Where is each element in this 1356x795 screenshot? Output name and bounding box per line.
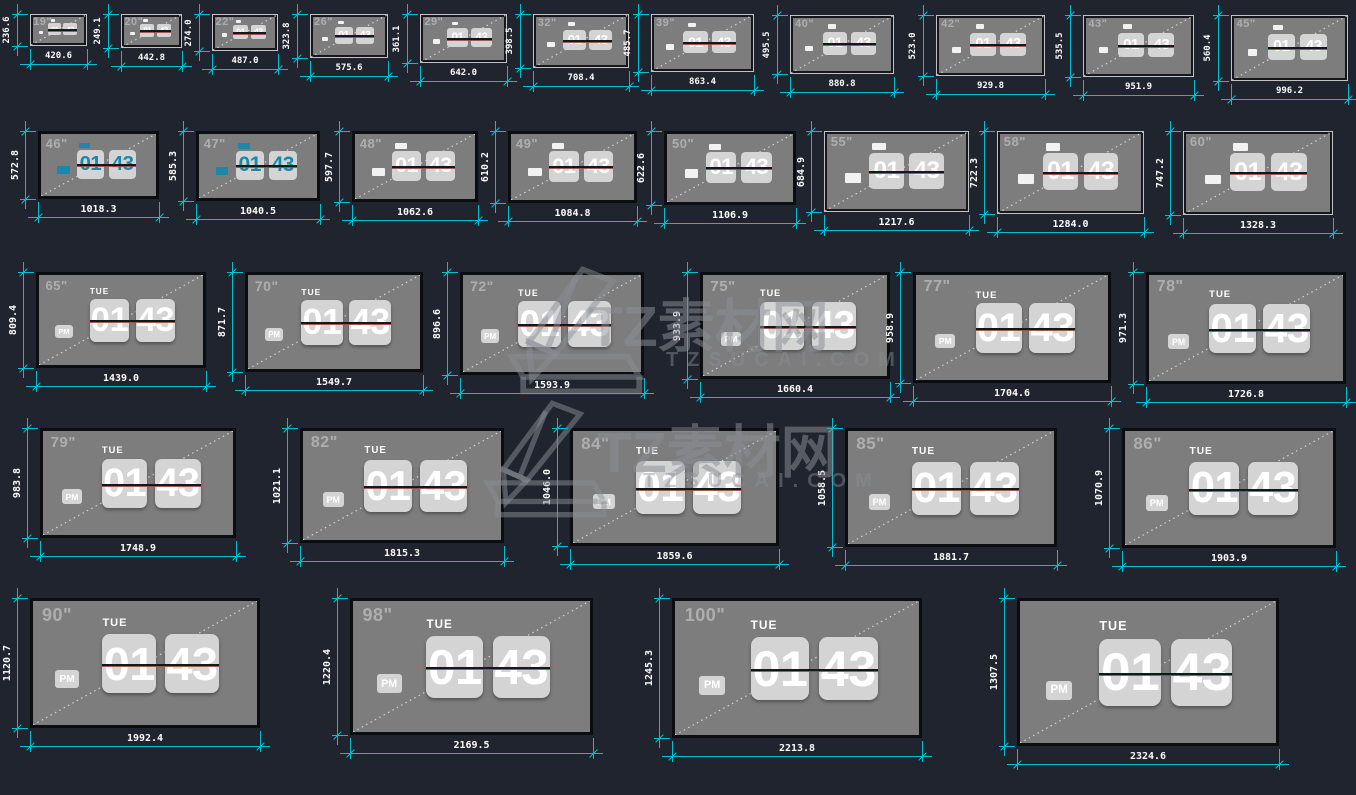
dim-extension-line — [1104, 428, 1120, 429]
day-label: TUE — [1209, 289, 1231, 300]
meridiem-badge: PM — [869, 494, 891, 510]
width-dim-value: 1726.8 — [1146, 389, 1346, 400]
dim-extension-line — [20, 199, 36, 200]
dim-extension-line — [682, 379, 698, 380]
day-block — [872, 143, 886, 150]
screen-rect: 49"0143 — [508, 131, 637, 203]
meridiem-block — [547, 42, 555, 47]
dim-extension-line — [895, 272, 911, 273]
screen-rect: 79"TUE0143PM — [40, 428, 236, 538]
screen-size-label: 60" — [1190, 134, 1212, 149]
dim-extension-line — [1111, 386, 1112, 407]
width-dim-value: 880.8 — [790, 79, 894, 89]
screen-rect: 47"0143 — [196, 131, 320, 201]
meridiem-block — [1248, 49, 1257, 55]
meridiem-badge: PM — [699, 676, 725, 695]
height-dim-value: 1046.0 — [542, 457, 554, 517]
dim-extension-line — [22, 538, 38, 539]
meridiem-block — [322, 37, 328, 41]
dim-line — [523, 86, 639, 87]
day-block — [238, 143, 250, 149]
meridiem-badge: PM — [721, 332, 740, 346]
dim-extension-line — [772, 74, 788, 75]
dim-extension-line — [12, 728, 28, 729]
dim-extension-line — [1065, 15, 1081, 16]
dim-extension-line — [12, 598, 28, 599]
height-dim-value: 933.9 — [672, 296, 684, 356]
dim-line — [339, 121, 340, 212]
height-dim-value: 560.4 — [1203, 18, 1215, 78]
day-block — [1273, 25, 1282, 30]
screen-size-label: 46" — [46, 136, 68, 151]
width-dim-value: 1660.4 — [700, 384, 890, 395]
flip-divider-red — [447, 40, 491, 41]
screen-rect: 75"TUE0143PM — [700, 272, 890, 379]
dim-extension-line — [442, 272, 458, 273]
dim-line — [342, 220, 488, 221]
dim-extension-line — [332, 598, 348, 599]
screen-rect: 98"TUE0143PM — [350, 598, 593, 735]
meridiem-block — [39, 31, 43, 34]
screen-size-label: 50" — [672, 136, 694, 151]
dim-extension-line — [1213, 81, 1229, 82]
dim-extension-line — [1065, 77, 1081, 78]
dim-extension-line — [1045, 79, 1046, 100]
day-label: TUE — [1189, 446, 1212, 457]
day-block — [688, 23, 696, 27]
dim-extension-line — [1128, 272, 1144, 273]
dim-extension-line — [772, 15, 788, 16]
dim-extension-line — [646, 205, 662, 206]
width-dim-value: 1549.7 — [245, 377, 423, 388]
dim-extension-line — [103, 48, 119, 49]
dim-line — [290, 561, 514, 562]
height-dim-value: 535.5 — [1055, 16, 1067, 76]
height-dim-value: 274.0 — [184, 3, 196, 63]
width-dim-value: 442.8 — [121, 53, 182, 63]
height-dim-value: 971.3 — [1118, 298, 1130, 358]
height-dim-value: 597.7 — [324, 137, 336, 197]
dim-extension-line — [388, 61, 389, 82]
day-label: TUE — [90, 287, 109, 296]
dim-extension-line — [18, 368, 34, 369]
dim-line — [183, 121, 184, 211]
flip-divider-red — [392, 168, 454, 169]
dim-extension-line — [1333, 218, 1334, 239]
dim-line — [232, 262, 233, 382]
dim-line — [687, 262, 688, 389]
dim-line — [287, 418, 288, 553]
dim-extension-line — [206, 371, 207, 392]
screen-size-label: 90" — [42, 605, 72, 626]
flip-divider-red — [301, 324, 390, 325]
dim-extension-line — [918, 76, 934, 77]
dim-extension-line — [194, 51, 210, 52]
dim-extension-line — [1165, 215, 1181, 216]
screen-size-label: 26" — [314, 16, 333, 28]
day-block — [568, 22, 576, 26]
width-dim-value: 1084.8 — [508, 208, 637, 219]
dim-line — [25, 121, 26, 209]
dim-line — [832, 418, 833, 557]
height-dim-value: 684.9 — [796, 142, 808, 202]
meridiem-badge: PM — [55, 325, 72, 338]
dim-extension-line — [282, 428, 298, 429]
day-label: TUE — [751, 618, 778, 632]
dim-extension-line — [779, 549, 780, 570]
dim-extension-line — [22, 428, 38, 429]
day-block — [1123, 24, 1132, 29]
dim-line — [984, 121, 985, 224]
dim-line — [27, 418, 28, 548]
meridiem-block — [372, 168, 385, 176]
meridiem-badge: PM — [1168, 334, 1188, 349]
dim-extension-line — [320, 204, 321, 225]
height-dim-value: 809.4 — [8, 290, 20, 350]
width-dim-value: 642.0 — [420, 68, 507, 78]
dim-extension-line — [1194, 80, 1195, 101]
height-dim-value: 1070.9 — [1094, 458, 1106, 518]
height-dim-value: 610.2 — [480, 137, 492, 197]
flip-divider-red — [1230, 174, 1307, 175]
screen-size-label: 75" — [710, 278, 735, 295]
width-dim-value: 1903.9 — [1122, 553, 1336, 564]
dim-extension-line — [1346, 387, 1347, 408]
height-dim-value: 958.9 — [885, 298, 897, 358]
dim-extension-line — [292, 14, 308, 15]
width-dim-value: 1062.6 — [352, 207, 478, 218]
width-dim-value: 1859.6 — [570, 551, 779, 562]
flip-divider-red — [751, 671, 878, 672]
meridiem-block — [952, 47, 961, 53]
day-label: TUE — [518, 288, 539, 298]
flip-divider-red — [102, 666, 218, 667]
dim-extension-line — [895, 383, 911, 384]
dim-extension-line — [890, 382, 891, 403]
screen-size-label: 58" — [1004, 134, 1026, 149]
day-label: TUE — [760, 288, 781, 298]
screen-rect: 39"0143 — [651, 14, 754, 72]
dim-extension-line — [260, 731, 261, 752]
dim-extension-line — [182, 51, 183, 72]
dim-extension-line — [87, 49, 88, 70]
flip-divider-red — [683, 44, 736, 45]
dim-extension-line — [918, 15, 934, 16]
dim-extension-line — [1057, 550, 1058, 571]
width-dim-value: 2324.6 — [1017, 751, 1279, 762]
flip-divider-red — [236, 167, 297, 168]
day-label: TUE — [636, 446, 659, 457]
dim-line — [641, 90, 764, 91]
screen-rect: 58"0143 — [997, 131, 1144, 214]
width-dim-value: 951.9 — [1083, 82, 1194, 92]
dim-line — [1073, 95, 1204, 96]
height-dim-value: 249.1 — [93, 1, 105, 61]
dim-extension-line — [159, 202, 160, 223]
width-dim-value: 1106.9 — [664, 210, 796, 221]
dim-extension-line — [827, 428, 843, 429]
height-dim-value: 722.3 — [969, 143, 981, 203]
flip-divider-red — [970, 46, 1026, 47]
screen-rect: 100"TUE0143PM — [672, 598, 922, 738]
dim-extension-line — [334, 202, 350, 203]
screen-size-label: 47" — [204, 136, 226, 151]
screen-size-label: 79" — [51, 434, 76, 451]
width-dim-value: 708.4 — [533, 73, 629, 83]
width-dim-value: 2213.8 — [672, 743, 922, 754]
dim-line — [814, 230, 979, 231]
dim-extension-line — [178, 131, 194, 132]
day-label: TUE — [426, 618, 452, 631]
height-dim-value: 1307.5 — [989, 642, 1001, 702]
dim-line — [926, 94, 1055, 95]
meridiem-block — [845, 173, 861, 182]
dim-extension-line — [490, 203, 506, 204]
dim-extension-line — [552, 428, 568, 429]
dim-extension-line — [1128, 384, 1144, 385]
dim-extension-line — [1348, 84, 1349, 105]
day-block — [1233, 143, 1248, 150]
width-dim-value: 929.8 — [936, 81, 1045, 91]
day-block — [1046, 143, 1061, 150]
width-dim-value: 1593.9 — [460, 380, 644, 391]
flip-divider-red — [563, 42, 612, 43]
dim-extension-line — [515, 14, 531, 15]
dim-extension-line — [227, 272, 243, 273]
meridiem-block — [216, 167, 229, 175]
screen-size-label: 29" — [424, 16, 443, 28]
screen-rect: 55"0143 — [824, 131, 969, 212]
flip-divider-red — [823, 45, 876, 46]
dim-line — [20, 746, 270, 747]
screen-size-label: 32" — [538, 17, 557, 29]
dim-line — [202, 69, 288, 70]
meridiem-block — [1099, 47, 1108, 53]
dim-extension-line — [682, 272, 698, 273]
screen-size-label: 86" — [1133, 434, 1161, 454]
screen-size-label: 43" — [1088, 18, 1107, 30]
dim-extension-line — [442, 375, 458, 376]
width-dim-value: 1217.6 — [824, 217, 969, 228]
screen-rect: 77"TUE0143PM — [913, 272, 1111, 383]
screen-rect: 22"0143 — [212, 14, 278, 51]
screen-size-label: 45" — [1237, 18, 1256, 30]
day-block — [452, 22, 459, 26]
height-dim-value: 398.5 — [505, 11, 517, 71]
dim-extension-line — [332, 735, 348, 736]
meridiem-badge: PM — [935, 334, 955, 349]
day-block — [828, 24, 836, 29]
screen-rect: 65"TUE0143PM — [36, 272, 206, 368]
dim-extension-line — [999, 746, 1015, 747]
flip-divider-red — [102, 486, 201, 487]
dim-line — [26, 386, 216, 387]
dim-extension-line — [20, 131, 36, 132]
width-dim-value: 1881.7 — [845, 552, 1057, 563]
dim-line — [1136, 402, 1356, 403]
dim-extension-line — [654, 738, 670, 739]
screen-rect: 90"TUE0143PM — [30, 598, 260, 728]
dim-line — [1004, 588, 1005, 756]
meridiem-badge: PM — [593, 494, 614, 510]
width-dim-value: 1704.6 — [913, 388, 1111, 399]
dim-line — [651, 121, 652, 215]
dim-line — [1218, 5, 1219, 91]
dim-line — [1170, 121, 1171, 225]
screen-size-label: 100" — [685, 605, 726, 626]
screen-rect: 45"0143 — [1231, 15, 1348, 81]
screen-size-label: 78" — [1157, 278, 1184, 296]
day-block — [143, 19, 148, 22]
dim-line — [1112, 566, 1346, 567]
day-block — [976, 24, 985, 29]
dim-line — [835, 565, 1067, 566]
dim-extension-line — [806, 212, 822, 213]
dim-line — [495, 121, 496, 213]
width-dim-value: 2169.5 — [350, 740, 593, 751]
screen-size-label: 19" — [33, 16, 52, 28]
dim-extension-line — [979, 214, 995, 215]
dim-extension-line — [282, 543, 298, 544]
screen-rect: 19"0143 — [30, 14, 87, 46]
dim-extension-line — [979, 131, 995, 132]
dim-extension-line — [423, 375, 424, 396]
dim-line — [557, 418, 558, 556]
dim-extension-line — [12, 46, 28, 47]
flip-divider-red — [426, 669, 549, 670]
dim-extension-line — [178, 201, 194, 202]
screen-rect: 60"0143 — [1183, 131, 1333, 215]
screen-rect: 82"TUE0143PM — [300, 428, 504, 543]
height-dim-value: 1058.5 — [817, 458, 829, 518]
day-block — [79, 143, 91, 149]
screen-rect: 85"TUE0143PM — [845, 428, 1057, 547]
flip-divider-red — [90, 322, 175, 323]
screen-rect: 70"TUE0143PM — [245, 272, 423, 372]
dim-extension-line — [969, 215, 970, 236]
screen-size-label: 98" — [362, 605, 392, 626]
dim-extension-line — [796, 208, 797, 229]
screen-rect: 78"TUE0143PM — [1146, 272, 1346, 384]
dim-extension-line — [278, 54, 279, 75]
dim-extension-line — [827, 547, 843, 548]
height-dim-value: 1220.4 — [322, 637, 334, 697]
dim-extension-line — [490, 131, 506, 132]
dim-extension-line — [806, 131, 822, 132]
day-label: TUE — [301, 287, 321, 297]
flip-divider-red — [549, 168, 613, 169]
screen-rect: 72"TUE0143PM — [460, 272, 644, 375]
dim-extension-line — [1144, 217, 1145, 238]
height-dim-value: 572.8 — [10, 135, 22, 195]
height-dim-value: 236.6 — [2, 0, 14, 60]
screen-size-label: 39" — [656, 17, 675, 29]
dim-line — [17, 588, 18, 738]
screen-rect: 20"0143 — [121, 14, 182, 48]
day-label: TUE — [102, 617, 127, 629]
screen-rect: 46"0143 — [38, 131, 159, 199]
flip-divider-red — [518, 326, 611, 327]
screen-rect: 29"0143 — [420, 14, 507, 63]
meridiem-badge: PM — [265, 328, 283, 341]
screen-size-label: 49" — [516, 136, 538, 151]
screen-size-label: 48" — [360, 136, 382, 151]
height-dim-value: 871.7 — [217, 292, 229, 352]
day-block — [395, 143, 407, 149]
dim-line — [1007, 764, 1289, 765]
dim-line — [654, 223, 806, 224]
dim-line — [30, 556, 246, 557]
screen-rect: 26"0143 — [310, 14, 388, 58]
dim-extension-line — [633, 14, 649, 15]
flip-divider-red — [140, 32, 171, 33]
height-dim-value: 585.3 — [168, 136, 180, 196]
height-dim-value: 747.2 — [1155, 143, 1167, 203]
flip-divider-red — [364, 488, 467, 489]
screen-size-label: 65" — [46, 278, 68, 293]
height-dim-value: 323.8 — [282, 6, 294, 66]
meridiem-badge: PM — [481, 329, 500, 343]
dim-extension-line — [1213, 15, 1229, 16]
width-dim-value: 1815.3 — [300, 548, 504, 559]
dim-extension-line — [894, 77, 895, 98]
flip-divider-red — [1189, 491, 1297, 492]
width-dim-value: 420.6 — [30, 51, 87, 61]
dim-line — [1221, 99, 1356, 100]
screen-size-label: 42" — [941, 18, 960, 30]
day-label: TUE — [102, 445, 124, 455]
meridiem-block — [805, 46, 813, 52]
flip-divider-red — [706, 169, 772, 170]
dim-line — [987, 232, 1154, 233]
meridiem-badge: PM — [1146, 495, 1168, 511]
meridiem-block — [130, 32, 135, 35]
dim-extension-line — [637, 206, 638, 227]
day-label: TUE — [976, 289, 998, 300]
height-dim-value: 495.5 — [762, 15, 774, 75]
day-block — [709, 144, 722, 150]
flip-divider-red — [1118, 47, 1175, 48]
dim-line — [811, 121, 812, 222]
dim-line — [450, 393, 654, 394]
flip-divider-red — [48, 31, 77, 32]
dim-extension-line — [402, 63, 418, 64]
width-dim-value: 1328.3 — [1183, 220, 1333, 231]
height-dim-value: 1245.3 — [644, 638, 656, 698]
width-dim-value: 1748.9 — [40, 543, 236, 554]
meridiem-block — [685, 169, 699, 177]
width-dim-value: 487.0 — [212, 56, 278, 66]
flip-divider-red — [1268, 49, 1328, 50]
screen-rect: 84"TUE0143PM — [570, 428, 779, 546]
dim-extension-line — [402, 14, 418, 15]
day-label: TUE — [912, 446, 935, 457]
width-dim-value: 1018.3 — [38, 204, 159, 215]
dim-extension-line — [292, 58, 308, 59]
dim-extension-line — [922, 741, 923, 762]
dim-extension-line — [593, 738, 594, 759]
meridiem-block — [433, 39, 440, 44]
flip-divider-red — [77, 166, 137, 167]
meridiem-block — [666, 44, 674, 50]
screen-rect: 50"0143 — [664, 131, 796, 205]
dim-extension-line — [629, 71, 630, 92]
screen-rect: 48"0143 — [352, 131, 478, 202]
dim-line — [410, 81, 517, 82]
dim-line — [235, 390, 433, 391]
dim-extension-line — [236, 541, 237, 562]
dim-line — [337, 588, 338, 745]
